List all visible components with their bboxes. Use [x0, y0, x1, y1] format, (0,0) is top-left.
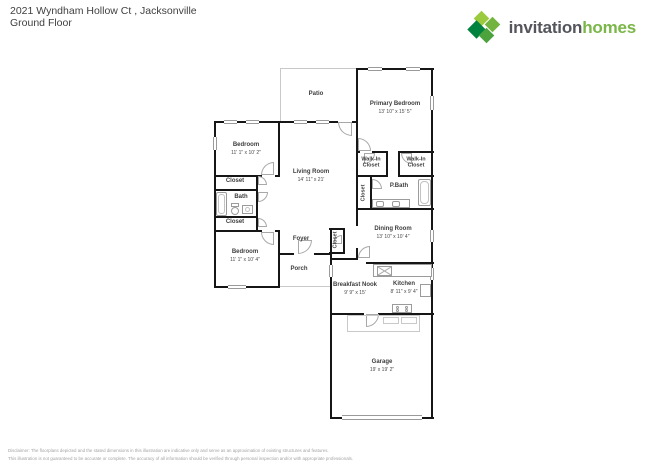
logo-word-invitation: invitation: [509, 18, 583, 37]
sink-basin: [245, 207, 250, 212]
window: [329, 265, 333, 277]
logo-word-homes: homes: [582, 18, 636, 37]
page-title-address: 2021 Wyndham Hollow Ct , Jacksonville: [10, 5, 197, 17]
sink-x-glyph: [378, 267, 391, 275]
room-label-foyer: Foyer: [293, 236, 309, 244]
wall: [278, 121, 280, 177]
wall: [214, 216, 258, 218]
garage-door: [342, 415, 422, 420]
room-label-garage: Garage 19' x 19' 2": [370, 359, 394, 373]
room-label-bedroom-top: Bedroom 11' 1" x 10' 2": [231, 142, 261, 156]
toilet-bowl-icon: [231, 207, 239, 215]
porch-edge-line: [280, 286, 330, 287]
window: [316, 120, 329, 124]
wall: [386, 151, 388, 177]
wall: [330, 228, 332, 419]
room-label-living-room: Living Room 14' 11" x 21': [293, 169, 329, 183]
bathtub-inner: [218, 194, 225, 214]
wall: [278, 232, 280, 287]
room-label-foyer-closet: Closet: [332, 232, 339, 249]
door-dining: [358, 246, 370, 258]
wall: [356, 208, 434, 210]
burner-dot: [405, 309, 408, 312]
invitation-homes-logo: invitationhomes: [468, 11, 636, 45]
wall: [330, 258, 358, 260]
window: [368, 67, 382, 71]
room-label-pbath-closet: Closet: [360, 185, 367, 202]
garage-equipment-box: [383, 317, 399, 324]
door-bath: [258, 192, 268, 202]
wall: [214, 286, 280, 288]
door-bedroom-top: [261, 162, 274, 175]
wall: [214, 230, 262, 232]
wall: [343, 228, 345, 254]
sink-icon: [376, 201, 384, 207]
room-label-walkin-closet-right: Walk-In Closet: [401, 157, 431, 170]
window: [224, 120, 237, 124]
page-subtitle-floor: Ground Floor: [10, 17, 72, 29]
window: [406, 67, 420, 71]
kitchen-sink-icon: [377, 266, 392, 276]
window: [246, 120, 259, 124]
room-label-breakfast-nook: Breakfast Nook 9' 9" x 15': [333, 282, 377, 296]
room-label-closet-bottom: Closet: [226, 219, 244, 227]
invitation-homes-pinwheel-icon: [468, 11, 502, 45]
room-label-closet-top: Closet: [226, 178, 244, 186]
door-bedroom-bottom: [261, 232, 274, 245]
wall: [278, 253, 294, 255]
wall: [214, 189, 258, 191]
window: [430, 230, 434, 242]
burner-dot: [396, 309, 399, 312]
wall: [431, 69, 433, 419]
room-label-patio: Patio: [309, 91, 324, 99]
window: [294, 120, 307, 124]
room-label-bedroom-bottom: Bedroom 11' 1" x 10' 4": [230, 249, 260, 263]
wall: [398, 151, 400, 177]
door-patio: [338, 122, 352, 136]
bathtub-inner: [420, 181, 429, 204]
garage-equipment-box: [401, 317, 417, 324]
door-closet-bottom: [258, 218, 267, 227]
room-label-primary-bedroom: Primary Bedroom 13' 10" x 15' 5": [370, 101, 420, 115]
wall: [399, 175, 434, 177]
logo-wordmark: invitationhomes: [509, 18, 636, 38]
disclaimer-line2: This illustration is not guaranteed to b…: [8, 456, 353, 461]
door-pbath-closet: [372, 179, 382, 189]
stove-icon: [392, 304, 412, 313]
window: [228, 285, 246, 289]
room-label-kitchen: Kitchen 8' 11" x 9' 4": [390, 281, 417, 295]
room-label-dining-room: Dining Room 13' 10" x 10' 4": [374, 226, 411, 240]
door-closet-top: [258, 176, 267, 185]
window: [430, 96, 434, 110]
wall: [214, 175, 262, 177]
room-label-bath: Bath: [234, 194, 247, 202]
room-label-pbath: P.Bath: [390, 183, 408, 191]
room-label-porch: Porch: [290, 266, 307, 274]
sink-icon: [392, 201, 400, 207]
window: [213, 137, 217, 150]
room-label-walkin-closet-left: Walk-In Closet: [356, 157, 386, 170]
door-primary-bedroom: [358, 138, 371, 151]
fridge-icon: [420, 284, 431, 297]
disclaimer-line1: Disclaimer: The floorplans depicted and …: [8, 448, 329, 453]
